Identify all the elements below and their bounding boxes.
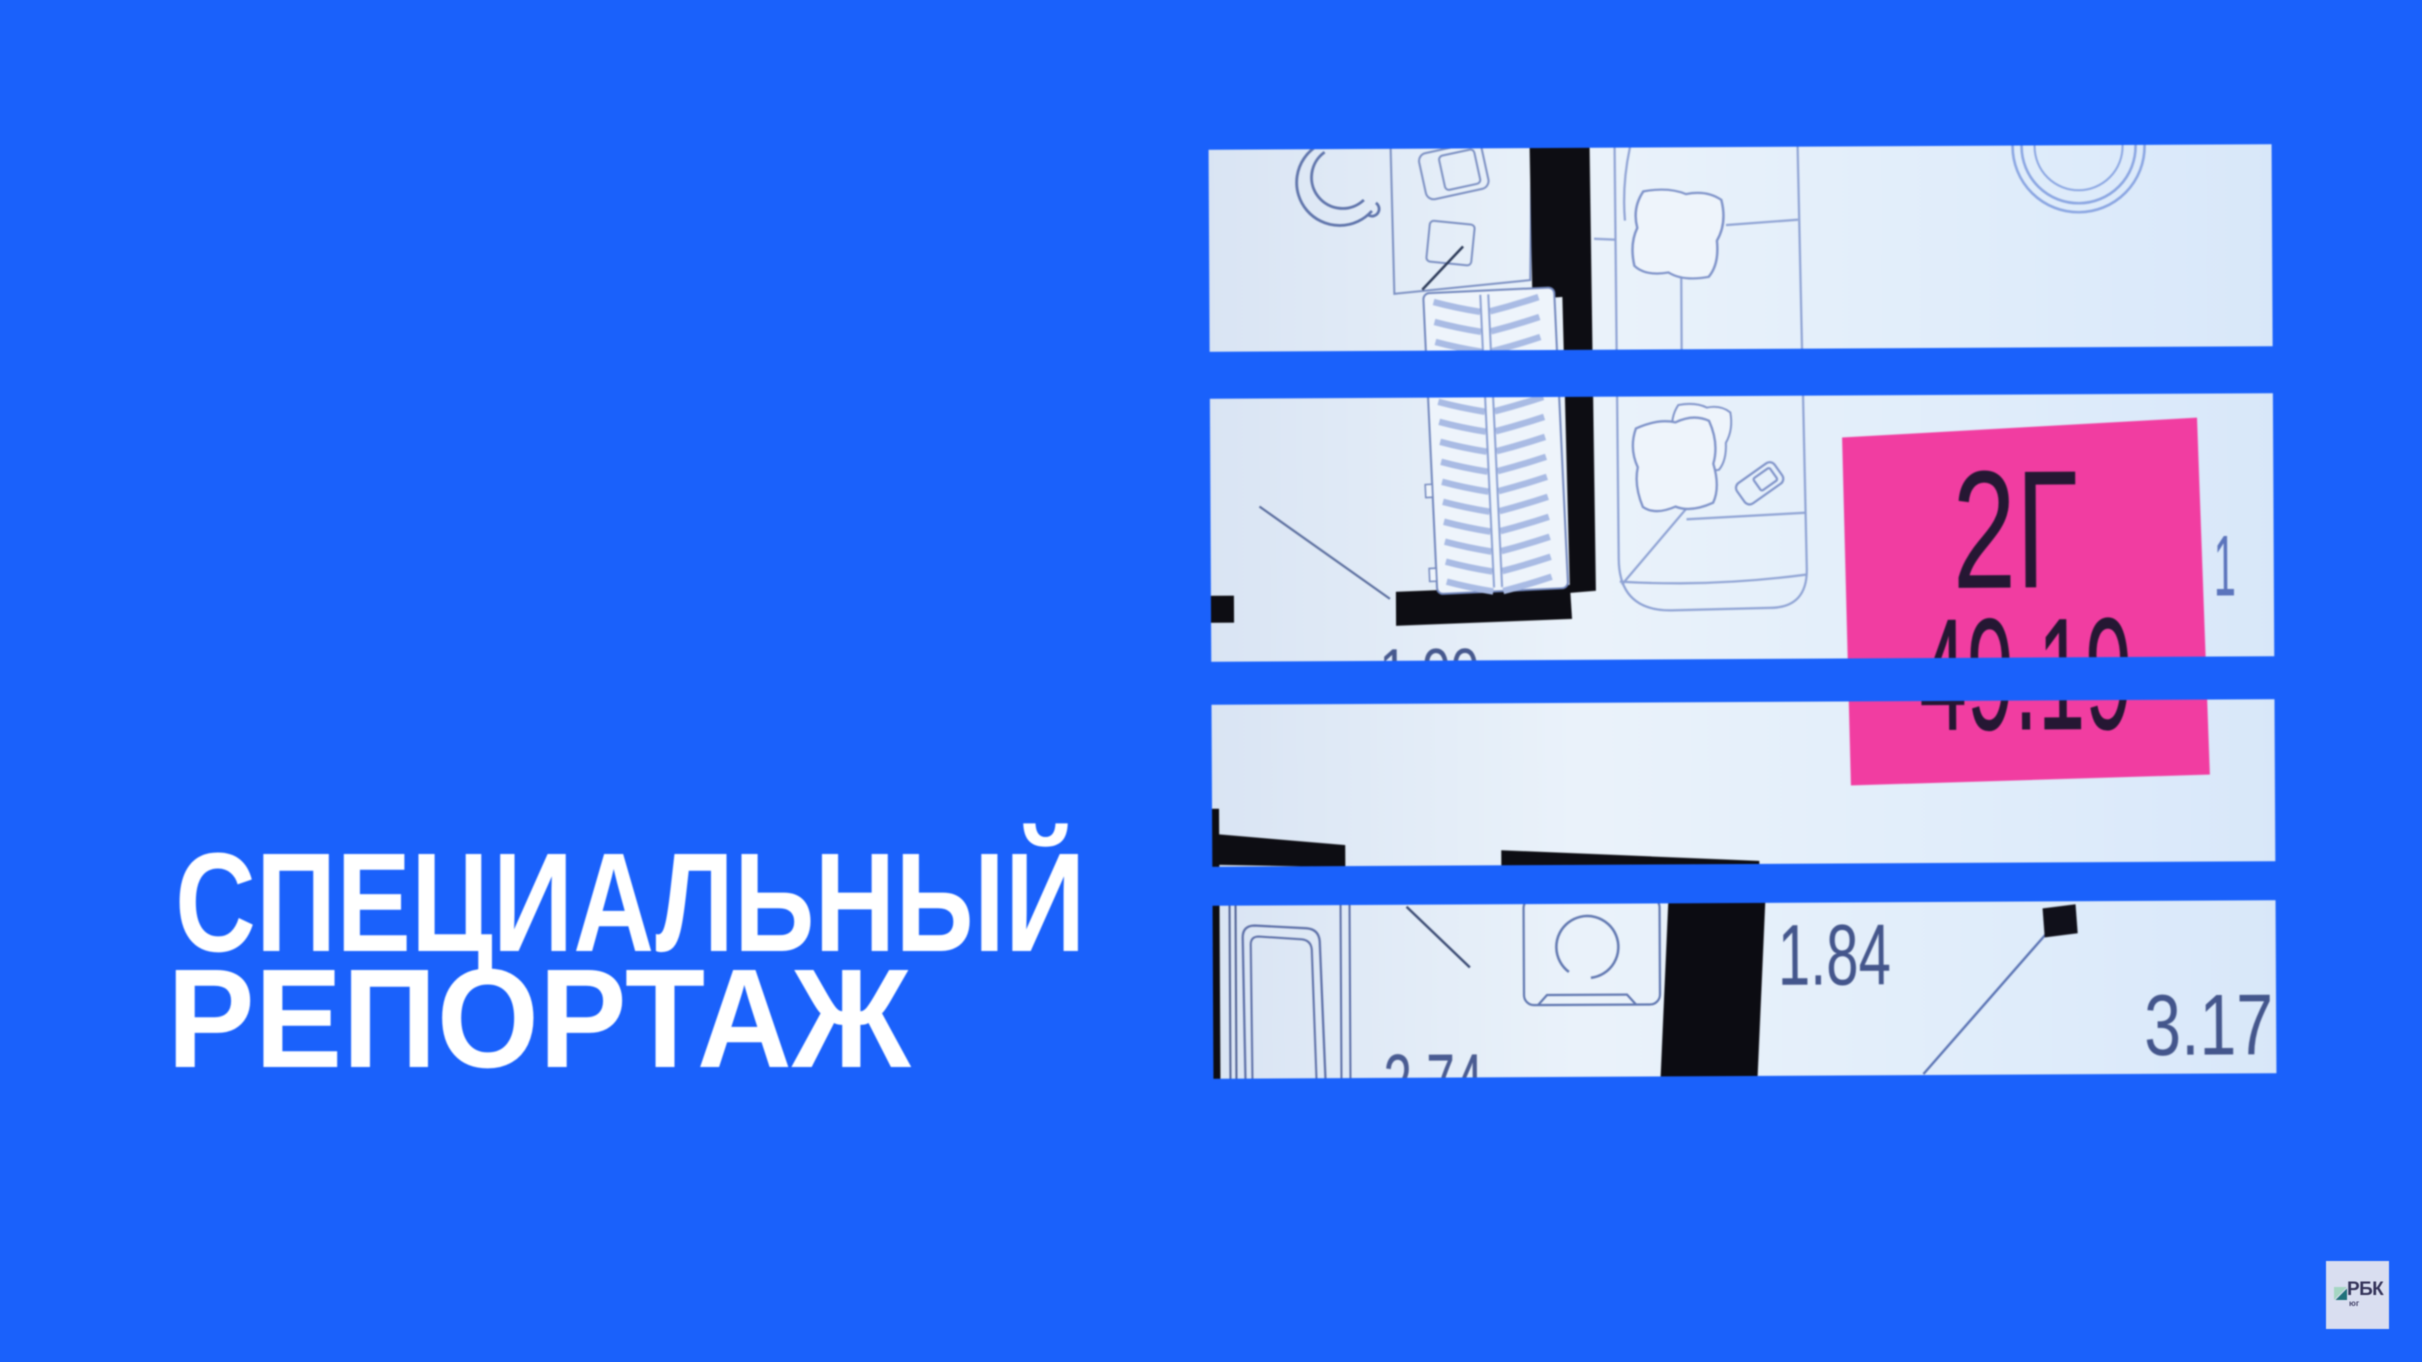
svg-text:2.74: 2.74 xyxy=(1383,1037,1483,1085)
svg-text:3.17: 3.17 xyxy=(2144,977,2274,1074)
svg-text:1.90: 1.90 xyxy=(1379,634,1479,709)
svg-text:49.19: 49.19 xyxy=(1919,584,2133,764)
svg-text:1: 1 xyxy=(2214,518,2237,614)
svg-text:1.84: 1.84 xyxy=(1778,907,1892,1004)
